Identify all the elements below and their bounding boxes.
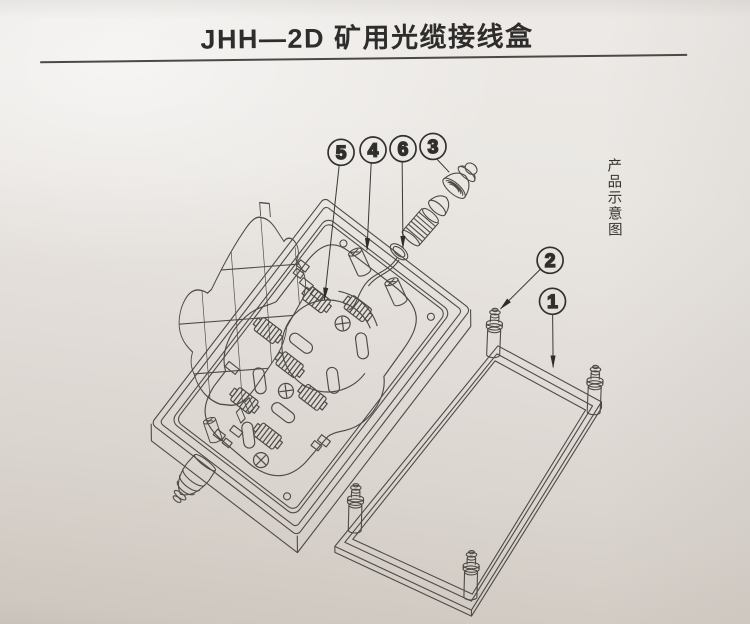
svg-text:2: 2 — [545, 251, 556, 272]
gland-seal-dome — [426, 191, 454, 219]
exploded-view-diagram: 5 4 6 3 2 1 — [0, 0, 750, 624]
callout-2-leader — [500, 268, 541, 308]
callout-bubbles: 5 4 6 3 2 1 — [328, 132, 566, 316]
corner-stud — [347, 483, 364, 533]
tray-screw — [332, 313, 353, 334]
callout-3: 3 — [420, 133, 446, 159]
corner-stud — [586, 365, 604, 415]
box-base — [141, 196, 481, 554]
lid-clip — [235, 406, 247, 424]
cable-gland-exploded — [397, 156, 485, 251]
callout-6: 6 — [390, 136, 416, 162]
svg-text:4: 4 — [368, 140, 379, 161]
gland-port — [387, 241, 410, 263]
svg-text:5: 5 — [336, 143, 347, 164]
corner-stud — [462, 550, 479, 600]
rim-hole — [426, 312, 436, 322]
callout-leaders — [323, 158, 553, 369]
splice-holder — [251, 420, 285, 452]
svg-text:1: 1 — [547, 292, 558, 313]
callout-1-leader — [553, 314, 554, 367]
svg-text:3: 3 — [428, 137, 439, 158]
side-caption: 产品示意图 — [603, 158, 625, 238]
standoff-post — [347, 246, 371, 277]
callout-3-leader — [437, 159, 449, 172]
tray-screw — [275, 380, 296, 401]
bottom-plate — [333, 345, 604, 618]
splice-holder — [227, 385, 261, 417]
fiber-path — [348, 258, 397, 310]
callout-4: 4 — [360, 137, 386, 163]
page-title: JHH—2D 矿用光缆接线盒 — [0, 12, 742, 58]
callout-1: 1 — [539, 288, 565, 314]
callout-6-leader — [402, 162, 403, 248]
rim-hole — [282, 491, 292, 501]
cable-gland-assembled — [164, 452, 218, 510]
lid-tab — [256, 195, 274, 224]
printed-page: JHH—2D 矿用光缆接线盒 产品示意图 — [0, 0, 750, 624]
callout-5-leader — [323, 165, 340, 299]
splice-holder — [295, 382, 329, 414]
gland-cap — [456, 158, 482, 184]
splice-holder — [251, 315, 285, 347]
callout-5: 5 — [328, 139, 354, 165]
svg-text:6: 6 — [398, 139, 409, 160]
page-photo: JHH—2D 矿用光缆接线盒 产品示意图 — [0, 0, 750, 624]
callout-2: 2 — [537, 247, 563, 273]
loose-screw — [253, 453, 268, 468]
